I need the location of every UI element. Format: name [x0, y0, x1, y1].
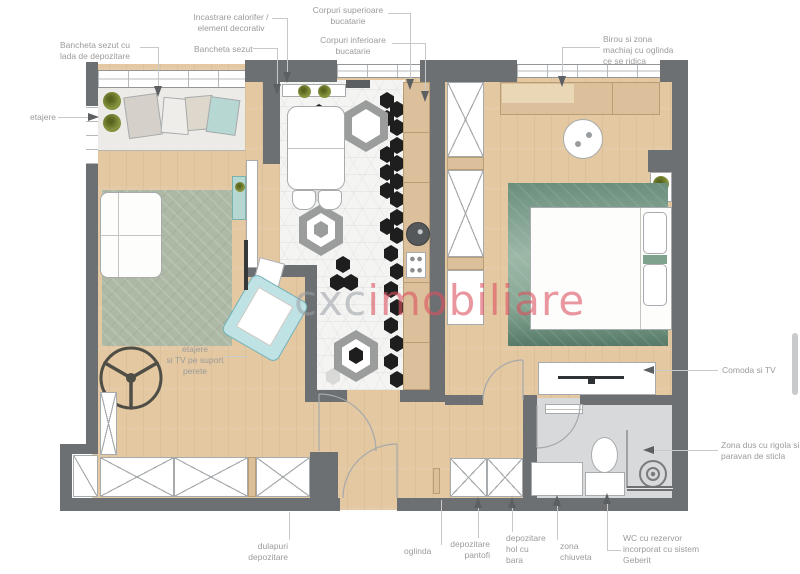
label-depozitare-pantofi: depozitare pantofi: [438, 539, 490, 561]
leader-arrow: [406, 79, 414, 90]
leader-arrow: [643, 446, 654, 454]
label-incastrare: Incastrare calorifer / element decorativ: [183, 12, 279, 34]
leader-arrow: [603, 493, 611, 504]
leader-line: [557, 506, 558, 540]
leader-line: [562, 47, 600, 48]
label-zona-dus: Zona dus cu rigola si paravan de sticla: [721, 440, 800, 462]
leader-line: [287, 18, 288, 74]
leader-line: [158, 47, 159, 88]
label-bancheta-sezut: Bancheta sezut: [194, 44, 253, 55]
leader-arrow: [553, 495, 561, 506]
leader-arrow: [273, 84, 281, 95]
leader-line: [388, 13, 410, 14]
watermark-right: imobiliare: [367, 276, 585, 325]
leader-line: [253, 48, 277, 49]
leader-line: [478, 508, 479, 538]
label-corpuri-superioare: Corpuri superioare bucatarie: [308, 5, 388, 27]
leader-line: [392, 43, 425, 44]
leader-arrow: [643, 366, 654, 374]
leader-line: [140, 47, 158, 48]
label-corpuri-inferioare: Corpuri inferioare bucatarie: [313, 35, 393, 57]
leader-line: [654, 450, 718, 451]
label-comoda-tv: Comoda si TV: [722, 365, 776, 376]
leader-line: [654, 370, 718, 371]
leader-line: [607, 504, 608, 550]
label-dulapuri: dulapuri depozitare: [220, 541, 288, 563]
label-etajere-tv: etajere si TV pe suport perete: [152, 344, 238, 377]
leader-line: [425, 43, 426, 93]
label-zona-chiuveta: zona chiuveta: [560, 541, 592, 563]
leader-arrow: [508, 497, 516, 508]
leader-arrow: [154, 86, 162, 97]
watermark: cxcimobiliare: [294, 276, 585, 325]
label-depozitare-hol: depozitare hol cu bara: [506, 533, 546, 566]
label-bancheta-lada: Bancheta sezut cu lada de depozitare: [60, 40, 140, 62]
label-wc: WC cu rezervor incorporat cu sistem Gebe…: [623, 533, 738, 566]
leader-line: [410, 13, 411, 81]
floor-plan: cxcimobiliare Bancheta sezut cu lada de …: [0, 0, 800, 574]
leader-arrow: [421, 91, 429, 102]
leader-line: [512, 508, 513, 532]
leader-arrow: [88, 113, 99, 121]
leader-line: [277, 48, 278, 86]
leader-line: [607, 550, 621, 551]
leader-arrow: [558, 76, 566, 87]
label-birou: Birou si zona machiaj cu oglinda ce se r…: [603, 34, 693, 67]
leader-line: [562, 47, 563, 78]
leader-arrow: [283, 72, 291, 83]
leader-line: [289, 512, 290, 540]
watermark-left: cxc: [294, 276, 367, 325]
leader-line: [58, 117, 88, 118]
leader-arrow: [474, 497, 482, 508]
label-oglinda: oglinda: [404, 546, 431, 557]
label-etajere: etajere: [30, 112, 56, 123]
scrollbar-thumb[interactable]: [792, 333, 798, 395]
